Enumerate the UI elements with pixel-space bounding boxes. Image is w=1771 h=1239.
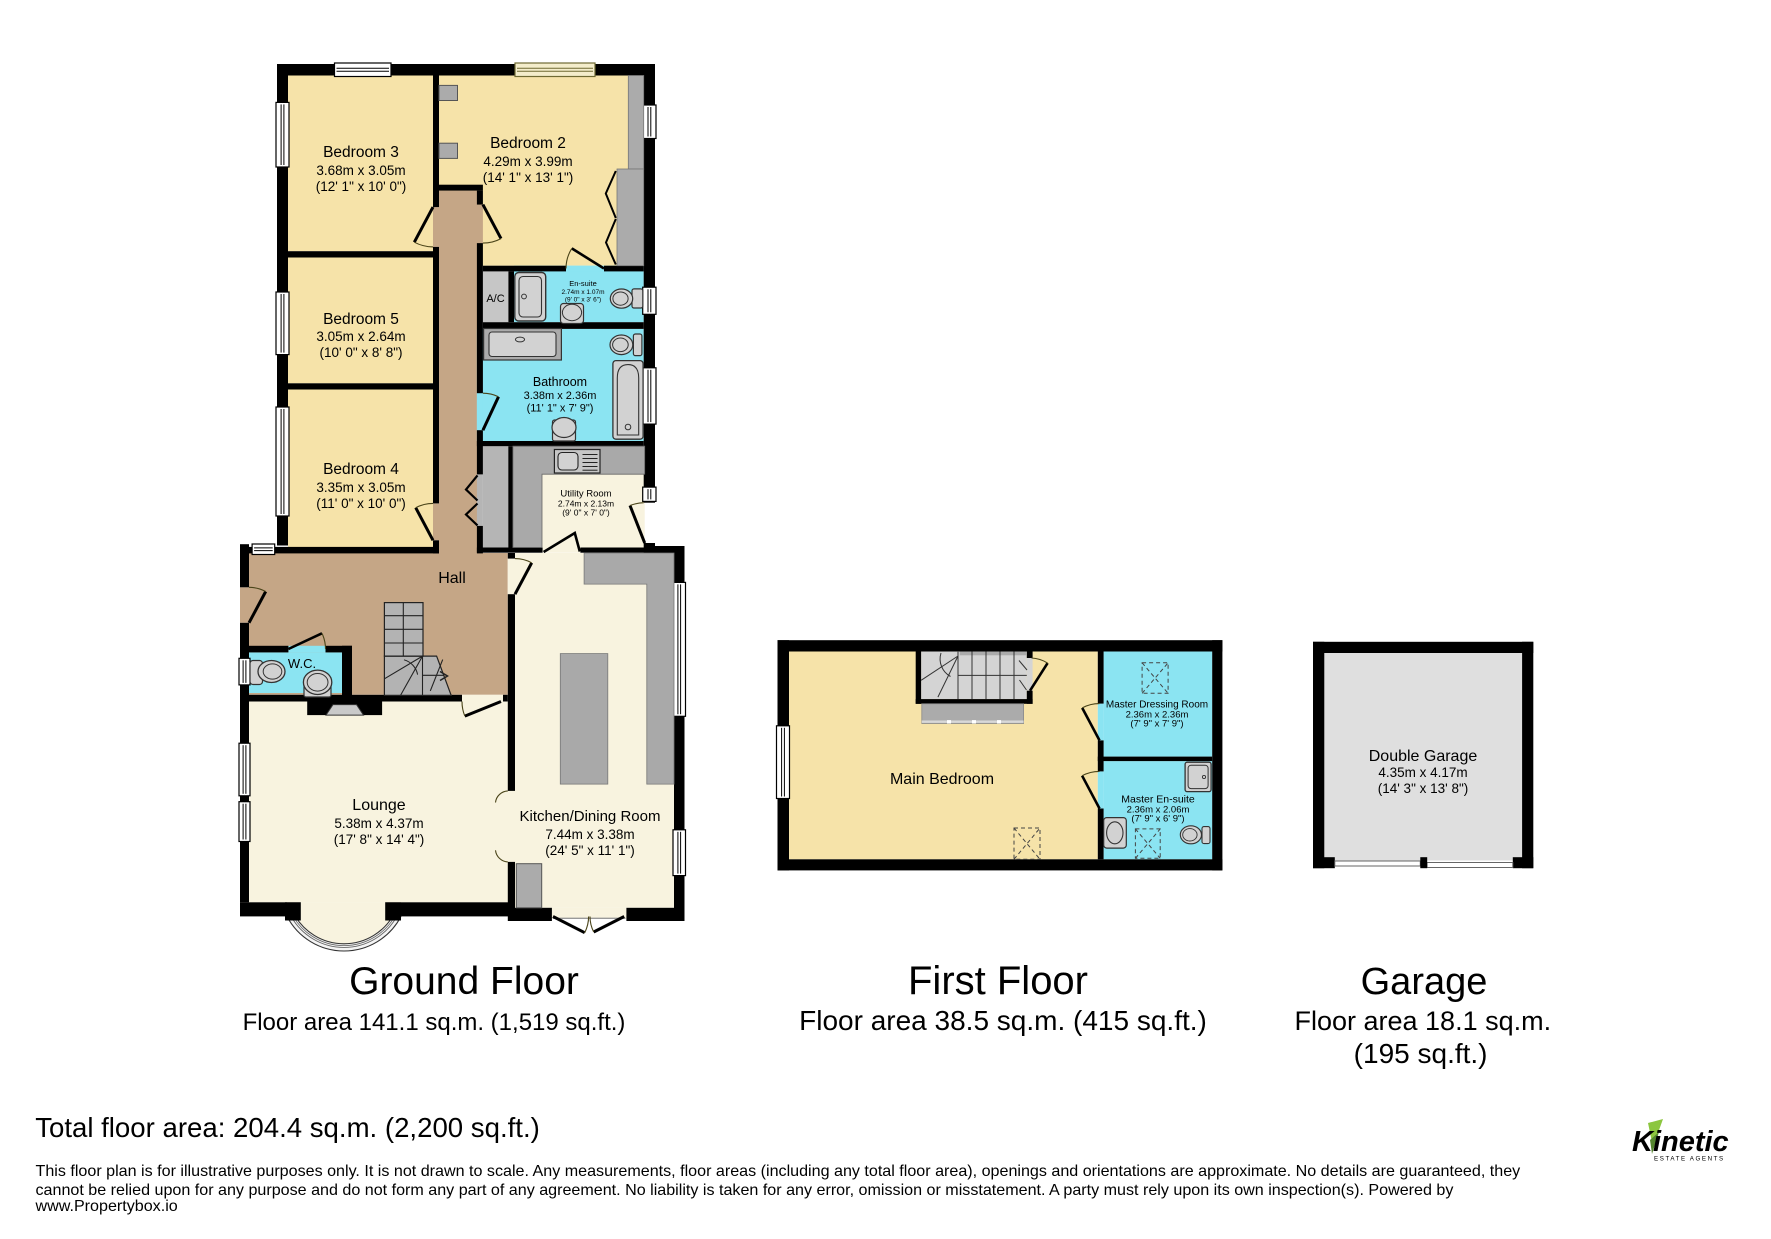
- svg-text:(14' 3" x 13' 8"): (14' 3" x 13' 8"): [1378, 781, 1469, 796]
- svg-text:Lounge: Lounge: [352, 797, 405, 814]
- svg-text:3.35m x 3.05m: 3.35m x 3.05m: [316, 480, 405, 495]
- svg-text:Total floor area: 204.4 sq.m.: Total floor area: 204.4 sq.m. (2,200 sq.…: [35, 1112, 540, 1143]
- svg-text:Bedroom 3: Bedroom 3: [323, 144, 399, 161]
- svg-text:(14' 1" x 13' 1"): (14' 1" x 13' 1"): [483, 170, 574, 185]
- svg-text:(17' 8" x 14' 4"): (17' 8" x 14' 4"): [334, 832, 425, 847]
- svg-text:3.68m x 3.05m: 3.68m x 3.05m: [316, 163, 405, 178]
- svg-text:First Floor: First Floor: [908, 959, 1088, 1003]
- svg-text:3.38m x 2.36m: 3.38m x 2.36m: [524, 390, 597, 402]
- svg-text:This floor plan is for illustr: This floor plan is for illustrative purp…: [36, 1162, 1522, 1180]
- svg-text:7.44m x 3.38m: 7.44m x 3.38m: [545, 827, 634, 842]
- svg-text:(11' 0" x 10' 0"): (11' 0" x 10' 0"): [316, 496, 406, 511]
- svg-text:Floor area 18.1 sq.m.: Floor area 18.1 sq.m.: [1294, 1006, 1551, 1036]
- svg-text:www.Propertybox.io: www.Propertybox.io: [35, 1197, 178, 1215]
- svg-text:Ground Floor: Ground Floor: [349, 960, 579, 1003]
- svg-text:(9' 0" x 7' 0"): (9' 0" x 7' 0"): [562, 508, 610, 518]
- svg-text:Hall: Hall: [438, 570, 466, 587]
- svg-text:5.38m x 4.37m: 5.38m x 4.37m: [334, 816, 423, 831]
- svg-text:Floor area 141.1 sq.m. (1,519: Floor area 141.1 sq.m. (1,519 sq.ft.): [243, 1009, 626, 1036]
- svg-text:Double Garage: Double Garage: [1369, 748, 1478, 765]
- svg-text:ESTATE AGENTS: ESTATE AGENTS: [1654, 1156, 1725, 1163]
- svg-text:(7' 9" x 6' 9"): (7' 9" x 6' 9"): [1131, 814, 1184, 825]
- svg-text:4.35m x 4.17m: 4.35m x 4.17m: [1378, 765, 1467, 780]
- svg-text:(11' 1" x 7' 9"): (11' 1" x 7' 9"): [527, 403, 594, 415]
- svg-text:Bedroom 2: Bedroom 2: [490, 135, 566, 152]
- svg-text:Bedroom 4: Bedroom 4: [323, 461, 399, 478]
- svg-text:2.74m x 1.07m: 2.74m x 1.07m: [562, 289, 605, 296]
- svg-text:(24' 5" x 11' 1"): (24' 5" x 11' 1"): [545, 843, 635, 858]
- svg-text:W.C.: W.C.: [288, 656, 316, 671]
- svg-text:cannot be relied upon for any: cannot be relied upon for any purpose an…: [36, 1181, 1455, 1199]
- svg-text:(195 sq.ft.): (195 sq.ft.): [1354, 1038, 1488, 1069]
- svg-text:(10' 0" x 8' 8"): (10' 0" x 8' 8"): [319, 345, 402, 360]
- svg-text:(12' 1" x 10' 0"): (12' 1" x 10' 0"): [316, 179, 407, 194]
- svg-text:Bedroom 5: Bedroom 5: [323, 311, 399, 328]
- svg-text:Floor area 38.5 sq.m. (415 sq.: Floor area 38.5 sq.m. (415 sq.ft.): [799, 1005, 1207, 1036]
- svg-text:Main Bedroom: Main Bedroom: [890, 771, 994, 788]
- svg-text:3.05m x 2.64m: 3.05m x 2.64m: [316, 329, 405, 344]
- svg-text:En-suite: En-suite: [569, 279, 597, 288]
- svg-text:Bathroom: Bathroom: [533, 375, 587, 389]
- svg-text:A/C: A/C: [486, 293, 504, 305]
- svg-text:(7' 9" x 7' 9"): (7' 9" x 7' 9"): [1130, 719, 1183, 730]
- svg-text:Kitchen/Dining Room: Kitchen/Dining Room: [520, 808, 661, 825]
- svg-text:(9' 0" x 3' 6"): (9' 0" x 3' 6"): [565, 297, 601, 304]
- svg-text:4.29m x 3.99m: 4.29m x 3.99m: [483, 154, 572, 169]
- svg-text:Garage: Garage: [1361, 961, 1488, 1003]
- svg-text:Kinetic: Kinetic: [1632, 1126, 1729, 1158]
